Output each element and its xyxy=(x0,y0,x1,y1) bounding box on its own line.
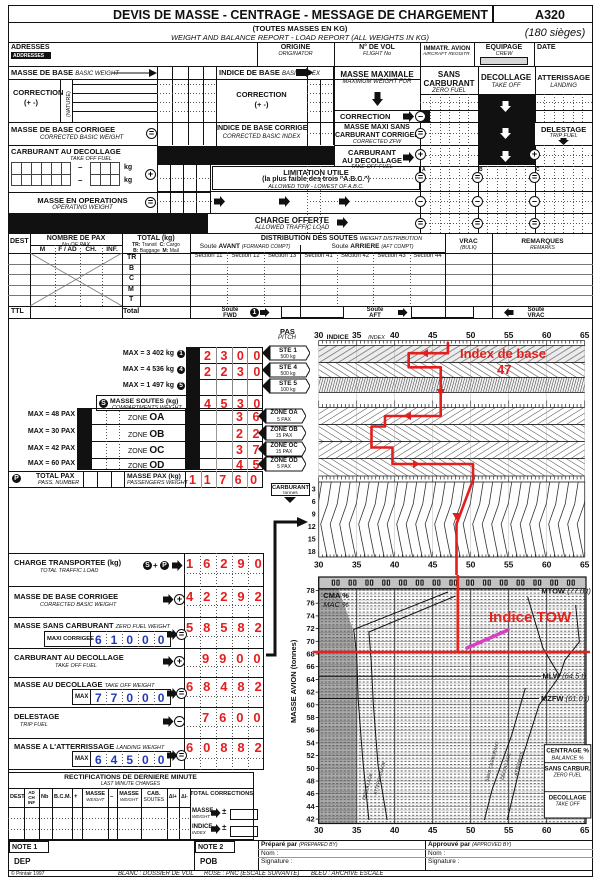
svg-text:CMA %: CMA % xyxy=(323,591,349,600)
svg-text:54: 54 xyxy=(306,738,315,747)
svg-text:45: 45 xyxy=(428,825,438,835)
svg-text:65: 65 xyxy=(580,825,590,835)
svg-text:62: 62 xyxy=(306,688,314,697)
svg-text:30: 30 xyxy=(314,825,324,835)
svg-text:MZFW (61.0 t): MZFW (61.0 t) xyxy=(541,694,590,703)
svg-text:18: 18 xyxy=(308,549,316,556)
svg-text:45: 45 xyxy=(428,560,438,570)
svg-text:52: 52 xyxy=(306,751,314,760)
svg-text:30: 30 xyxy=(314,560,324,570)
svg-text:46: 46 xyxy=(306,789,314,798)
svg-text:Index de base: Index de base xyxy=(460,346,546,361)
svg-text:CENTRAGE %: CENTRAGE % xyxy=(546,748,589,755)
svg-text:30: 30 xyxy=(314,330,324,340)
svg-text:15: 15 xyxy=(308,536,316,543)
svg-text:3: 3 xyxy=(312,486,316,493)
svg-text:65: 65 xyxy=(580,330,590,340)
svg-text:56: 56 xyxy=(306,726,314,735)
svg-text:MASSE AVION (tonnes): MASSE AVION (tonnes) xyxy=(290,639,298,723)
svg-text:45: 45 xyxy=(428,330,438,340)
svg-text:MAC %: MAC % xyxy=(323,600,349,609)
svg-text:6: 6 xyxy=(312,499,316,506)
svg-text:50: 50 xyxy=(466,560,476,570)
svg-text:55: 55 xyxy=(504,330,514,340)
svg-text:78: 78 xyxy=(306,586,314,595)
svg-text:47: 47 xyxy=(497,362,511,377)
svg-text:48: 48 xyxy=(306,777,314,786)
svg-text:42: 42 xyxy=(306,815,314,824)
svg-text:70: 70 xyxy=(306,637,314,646)
svg-text:ZERO FUEL: ZERO FUEL xyxy=(553,773,582,779)
svg-text:60: 60 xyxy=(542,330,552,340)
svg-text:50: 50 xyxy=(466,330,476,340)
svg-text:35: 35 xyxy=(352,825,362,835)
svg-text:50: 50 xyxy=(466,825,476,835)
svg-text:BALANCE %: BALANCE % xyxy=(552,756,584,762)
svg-text:35: 35 xyxy=(352,560,362,570)
svg-text:60: 60 xyxy=(542,825,552,835)
svg-text:58: 58 xyxy=(306,713,314,722)
svg-text:35: 35 xyxy=(352,330,362,340)
svg-text:Indice TOW: Indice TOW xyxy=(489,609,572,626)
svg-text:12: 12 xyxy=(308,524,316,531)
svg-text:76: 76 xyxy=(306,599,314,608)
svg-text:65: 65 xyxy=(580,560,590,570)
svg-text:74: 74 xyxy=(306,611,315,620)
svg-text:9: 9 xyxy=(312,511,316,518)
svg-text:40: 40 xyxy=(390,330,400,340)
svg-text:60: 60 xyxy=(542,560,552,570)
svg-text:40: 40 xyxy=(390,560,400,570)
svg-text:TAKE OFF: TAKE OFF xyxy=(556,802,581,808)
svg-text:44: 44 xyxy=(306,802,315,811)
svg-text:66: 66 xyxy=(306,662,314,671)
svg-text:INDICE: INDICE xyxy=(327,334,350,341)
svg-text:40: 40 xyxy=(390,825,400,835)
svg-text:MLW (64.5 t): MLW (64.5 t) xyxy=(543,672,587,681)
svg-text:50: 50 xyxy=(306,764,314,773)
svg-text:55: 55 xyxy=(504,825,514,835)
svg-text:64: 64 xyxy=(306,675,315,684)
svg-text:60: 60 xyxy=(306,700,314,709)
svg-text:55: 55 xyxy=(504,560,514,570)
svg-text:72: 72 xyxy=(306,624,314,633)
svg-text:MTOW (77.0 t): MTOW (77.0 t) xyxy=(541,587,591,596)
